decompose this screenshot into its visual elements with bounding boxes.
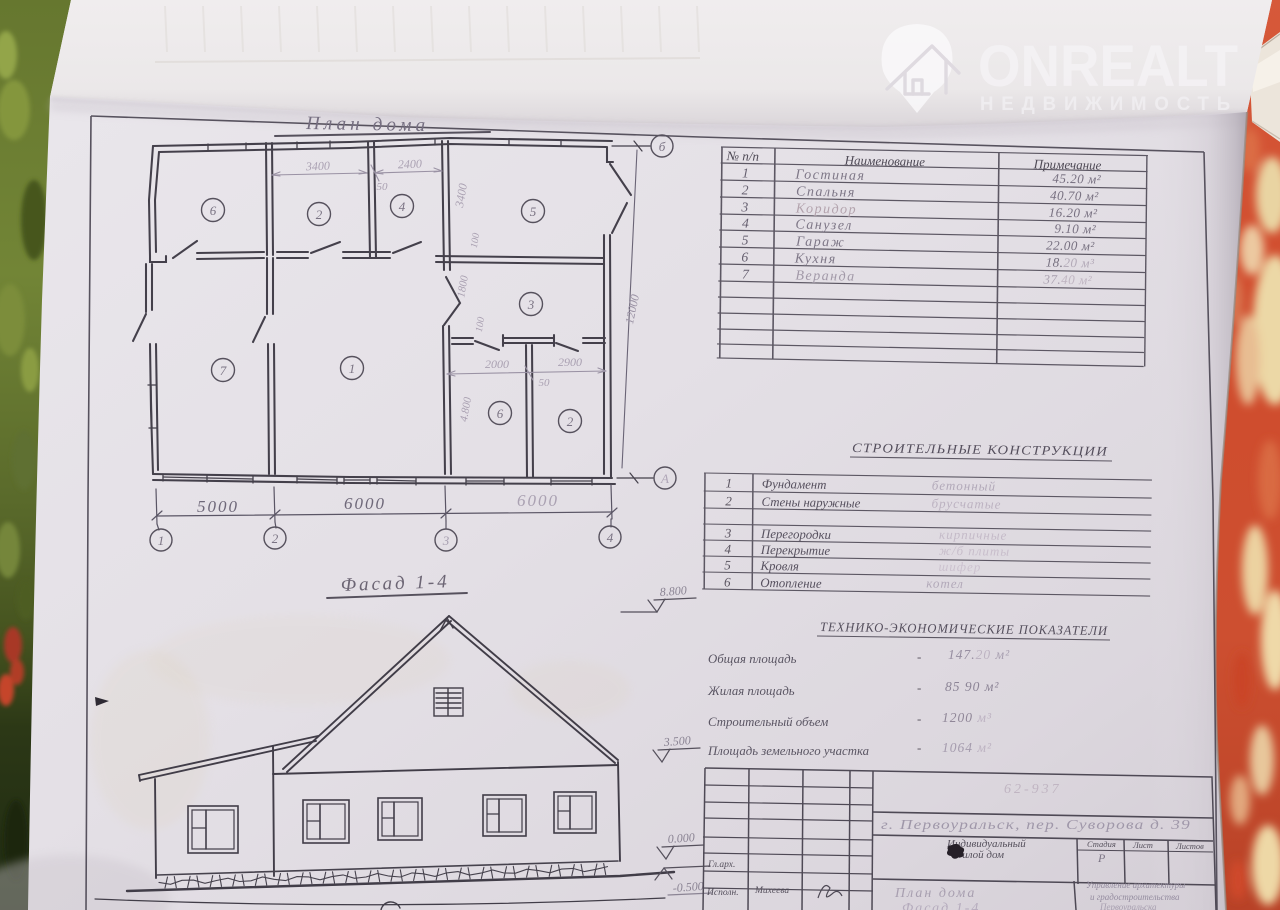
- svg-text:4: 4: [607, 530, 614, 545]
- svg-text:Жилая площадь: Жилая площадь: [707, 684, 795, 698]
- svg-text:8.800: 8.800: [659, 583, 687, 599]
- svg-text:5: 5: [724, 557, 731, 572]
- svg-text:б: б: [659, 139, 666, 154]
- svg-text:№ п/п: № п/п: [726, 148, 759, 164]
- svg-text:и градостроительства: и градостроительства: [1090, 892, 1180, 902]
- svg-text:Стены наружные: Стены наружные: [761, 495, 860, 511]
- svg-text:Фасад 1-4: Фасад 1-4: [902, 901, 980, 910]
- svg-text:А: А: [660, 471, 669, 486]
- svg-text:5: 5: [742, 232, 749, 247]
- svg-text:6: 6: [497, 406, 504, 421]
- svg-text:Отопление: Отопление: [760, 576, 822, 591]
- svg-text:45.20 м²: 45.20 м²: [1052, 171, 1102, 187]
- svg-text:Перегородки: Перегородки: [760, 527, 831, 542]
- svg-text:1: 1: [742, 165, 749, 180]
- svg-text:1: 1: [349, 361, 356, 376]
- svg-text:147.20 м²: 147.20 м²: [948, 647, 1010, 662]
- svg-text:1200 м³: 1200 м³: [942, 710, 992, 725]
- svg-text:7: 7: [220, 363, 227, 378]
- svg-text:Кровля: Кровля: [759, 559, 799, 574]
- svg-text:Коридор: Коридор: [795, 201, 858, 217]
- svg-text:-: -: [917, 740, 921, 755]
- svg-text:Общая площадь: Общая площадь: [708, 652, 797, 666]
- svg-text:2: 2: [272, 531, 279, 546]
- svg-text:-: -: [917, 711, 921, 726]
- svg-text:Первоуральска: Первоуральска: [1099, 902, 1157, 910]
- svg-text:6: 6: [210, 203, 217, 218]
- svg-text:6000: 6000: [517, 491, 559, 510]
- svg-text:5000: 5000: [197, 497, 239, 516]
- svg-text:2: 2: [742, 182, 749, 197]
- svg-text:бетонный: бетонный: [932, 478, 996, 494]
- svg-text:4: 4: [724, 541, 731, 556]
- svg-text:4: 4: [742, 215, 749, 230]
- svg-text:2: 2: [725, 493, 732, 508]
- svg-text:16.20 м²: 16.20 м²: [1049, 205, 1099, 221]
- svg-text:3: 3: [527, 297, 535, 312]
- svg-text:Фасад 1-4: Фасад 1-4: [340, 571, 450, 596]
- svg-text:22.00 м²: 22.00 м²: [1046, 238, 1096, 254]
- svg-text:Лист: Лист: [1132, 840, 1153, 850]
- svg-text:0.000: 0.000: [667, 830, 695, 846]
- svg-text:-0.500: -0.500: [672, 879, 704, 895]
- svg-text:2: 2: [316, 207, 323, 222]
- svg-text:Р: Р: [1097, 851, 1106, 865]
- svg-text:кирпичные: кирпичные: [939, 527, 1008, 543]
- svg-text:9.10 м²: 9.10 м²: [1054, 221, 1097, 237]
- svg-text:брусчатые: брусчатые: [931, 496, 1001, 512]
- svg-text:3: 3: [442, 533, 450, 548]
- svg-text:1: 1: [725, 475, 732, 490]
- svg-text:План дома: План дома: [894, 886, 976, 901]
- svg-text:котел: котел: [926, 576, 964, 592]
- svg-text:3: 3: [740, 199, 748, 214]
- svg-text:5: 5: [530, 204, 537, 219]
- svg-text:1064 м²: 1064 м²: [942, 740, 992, 755]
- svg-text:-: -: [917, 649, 921, 664]
- svg-text:Фундамент: Фундамент: [762, 477, 827, 492]
- svg-text:шифер: шифер: [938, 559, 981, 575]
- svg-text:Гл.арх.: Гл.арх.: [707, 860, 735, 870]
- svg-text:18.20 м³: 18.20 м³: [1046, 255, 1096, 271]
- svg-text:Михеева: Михеева: [754, 886, 789, 896]
- svg-text:Листов: Листов: [1175, 841, 1204, 851]
- svg-text:85 90 м²: 85 90 м²: [945, 679, 999, 694]
- svg-text:Санузел: Санузел: [795, 218, 853, 234]
- svg-text:-: -: [917, 680, 921, 695]
- svg-text:Спальня: Спальня: [796, 185, 856, 201]
- svg-text:Кухня: Кухня: [794, 251, 837, 267]
- svg-text:Исполн.: Исполн.: [706, 888, 739, 898]
- svg-text:Стадия: Стадия: [1087, 839, 1116, 849]
- svg-text:Наименование: Наименование: [844, 152, 926, 169]
- svg-text:50: 50: [377, 181, 389, 193]
- svg-text:2900: 2900: [558, 355, 582, 369]
- svg-text:Перекрытие: Перекрытие: [760, 543, 831, 558]
- svg-text:50: 50: [539, 377, 551, 389]
- svg-text:3: 3: [724, 525, 732, 540]
- svg-text:62-937: 62-937: [1004, 782, 1062, 797]
- svg-text:Веранда: Веранда: [795, 269, 856, 285]
- svg-text:ONREALT: ONREALT: [978, 34, 1238, 99]
- svg-text:Площадь земельного участка: Площадь земельного участка: [707, 744, 869, 758]
- svg-text:4: 4: [399, 199, 406, 214]
- svg-text:ж/б плиты: ж/б плиты: [939, 543, 1011, 559]
- svg-text:3400: 3400: [305, 159, 330, 174]
- svg-text:1: 1: [158, 533, 165, 548]
- svg-text:Управление архитектуры: Управление архитектуры: [1086, 880, 1185, 890]
- svg-text:2: 2: [567, 414, 574, 429]
- svg-text:Строительный объем: Строительный объем: [708, 715, 828, 729]
- svg-text:6: 6: [724, 574, 731, 589]
- svg-text:Гараж: Гараж: [795, 235, 845, 251]
- svg-text:37.40 м²: 37.40 м²: [1042, 271, 1093, 287]
- svg-text:Гостиная: Гостиная: [794, 167, 865, 183]
- svg-text:2000: 2000: [485, 357, 509, 371]
- svg-text:НЕДВИЖИМОСТЬ: НЕДВИЖИМОСТЬ: [980, 94, 1238, 115]
- svg-text:г. Первоуральск, пер. Суворов: г. Первоуральск, пер. Суворова д. 39: [881, 817, 1191, 832]
- svg-text:2400: 2400: [398, 157, 422, 172]
- svg-text:40.70 м²: 40.70 м²: [1050, 188, 1100, 204]
- svg-text:3.500: 3.500: [662, 733, 691, 749]
- svg-text:6: 6: [741, 249, 748, 264]
- svg-text:6000: 6000: [344, 494, 386, 513]
